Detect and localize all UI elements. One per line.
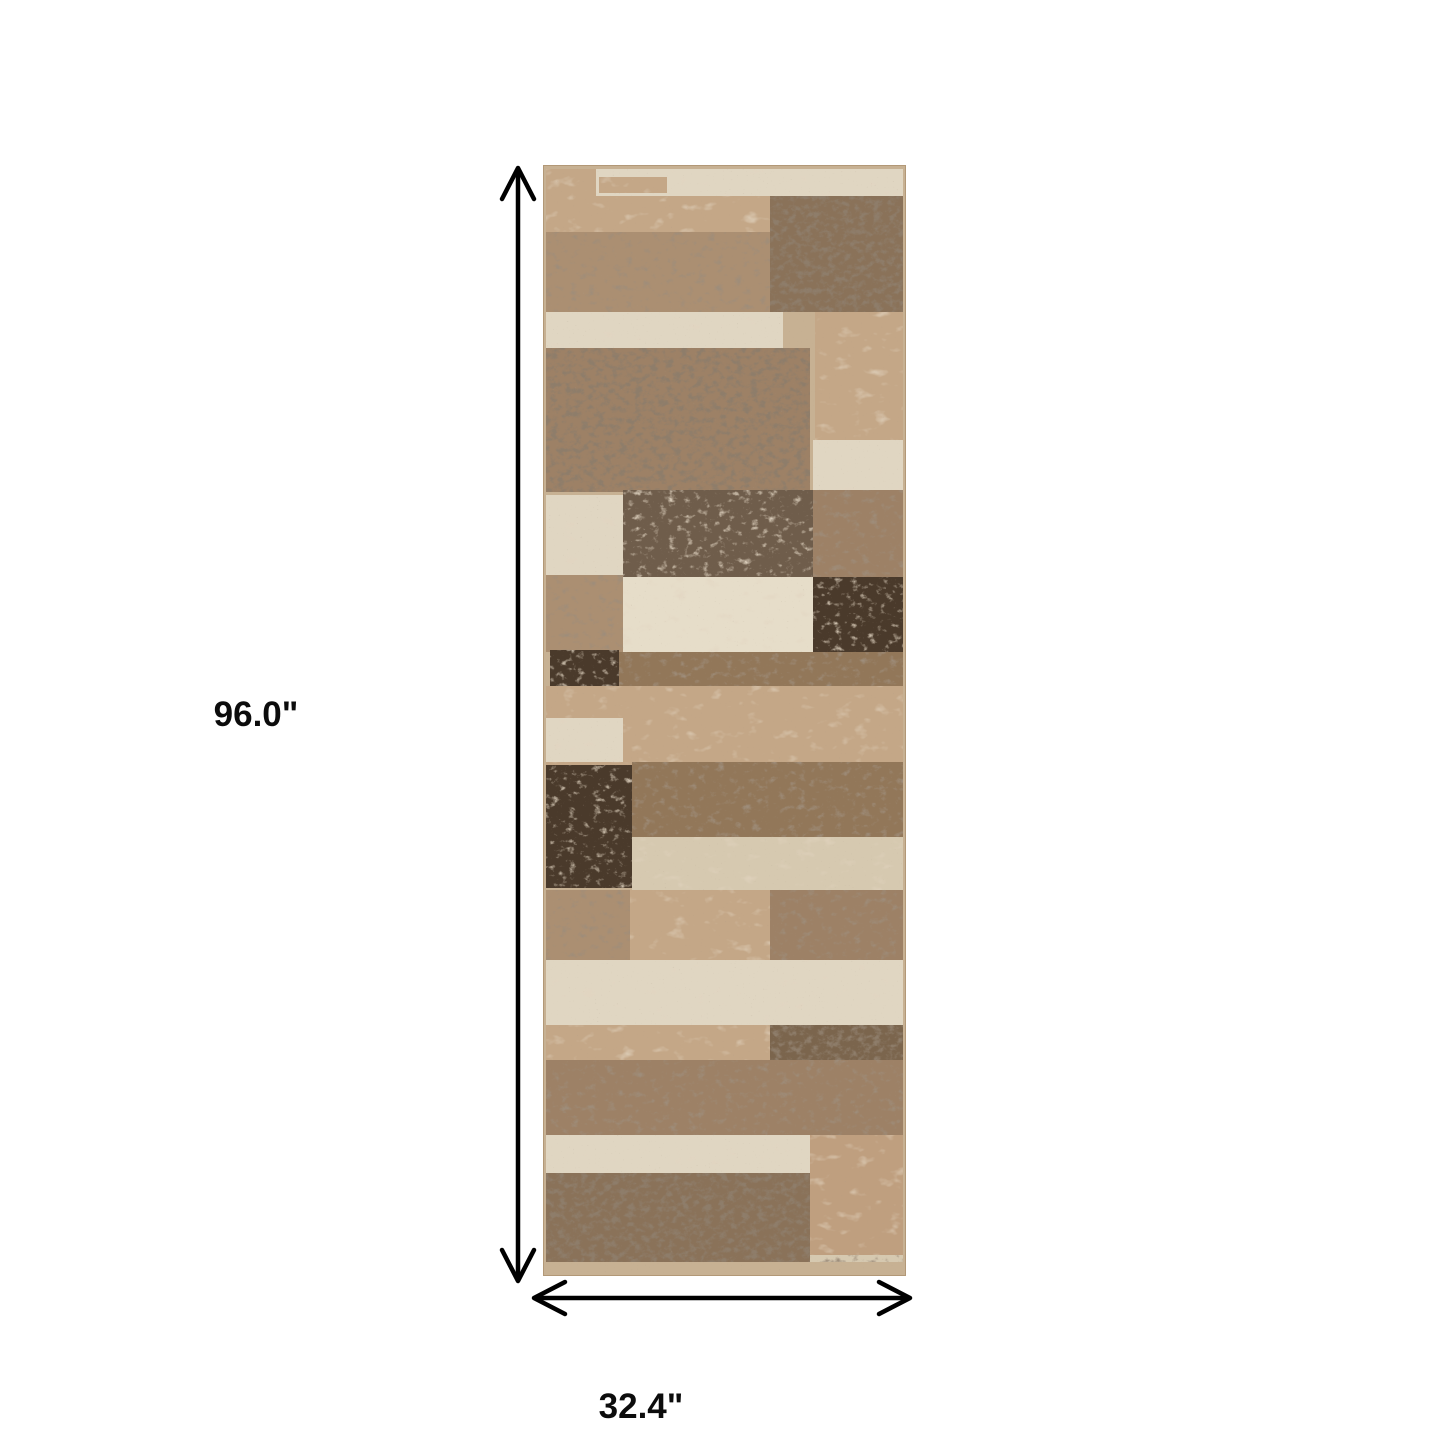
product-dimension-diagram: 96.0" 32.4" [0,0,1445,1445]
height-dimension-label: 96.0" [171,696,341,734]
rug-grain-texture [546,168,903,1273]
rug-image [543,165,906,1276]
width-arrow [534,1282,910,1314]
height-arrow [502,168,534,1281]
width-dimension-label: 32.4" [556,1388,726,1426]
